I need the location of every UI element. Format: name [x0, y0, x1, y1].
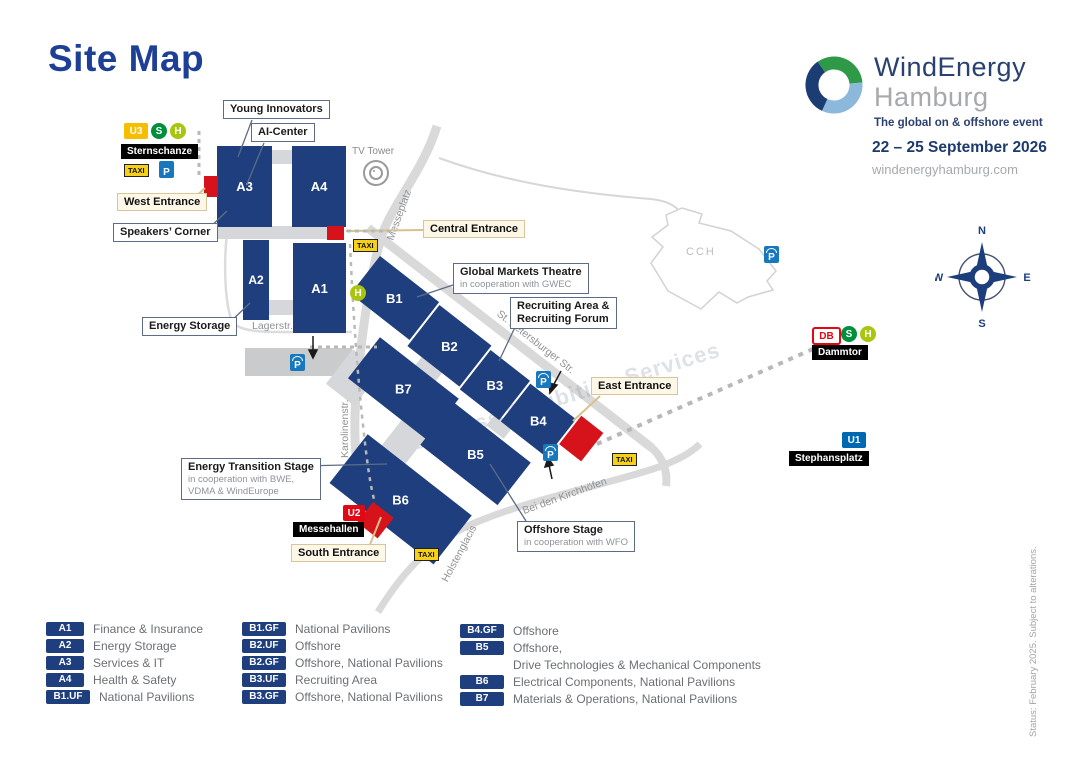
energy-transition-stage-label: Energy Transition Stage in cooperation w… — [181, 458, 321, 500]
station-dammtor: Dammtor — [812, 345, 868, 360]
compass-east: E — [1023, 272, 1030, 284]
covered-parking-icon-lagerstr: P — [290, 354, 305, 371]
energy-transition-sub2: VDMA & WindEurope — [188, 486, 314, 497]
legend-label-b1uf: National Pavilions — [99, 690, 194, 704]
recruiting-line1: Recruiting Area & — [517, 300, 610, 312]
legend-code-a2: A2 — [46, 639, 84, 653]
recruiting-label: Recruiting Area & Recruiting Forum — [510, 297, 617, 329]
sbahn-icon-dammtor: S — [841, 326, 857, 342]
station-sternschanze: Sternschanze — [121, 144, 198, 159]
legend-row: B4.GFOffshore — [460, 622, 761, 639]
energy-transition-title: Energy Transition Stage — [188, 461, 314, 473]
energy-storage-label: Energy Storage — [142, 317, 237, 336]
legend-row: B2.GFOffshore, National Pavilions — [242, 654, 443, 671]
legend-code-b2gf: B2.GF — [242, 656, 286, 670]
legend-row: A3Services & IT — [46, 654, 203, 671]
legend-label-b2gf: Offshore, National Pavilions — [295, 656, 443, 670]
offshore-stage-subtitle: in cooperation with WFO — [524, 537, 628, 548]
taxi-icon-central: TAXI — [353, 239, 378, 252]
legend-code-b1uf: B1.UF — [46, 690, 90, 704]
legend-code-b7: B7 — [460, 692, 504, 706]
legend-label-b6: Electrical Components, National Pavilion… — [513, 675, 735, 689]
covered-parking-icon-east: P — [543, 444, 558, 461]
taxi-icon-east: TAXI — [612, 453, 637, 466]
legend-code-a4: A4 — [46, 673, 84, 687]
legend-label-b5: Offshore, — [513, 641, 562, 655]
legend-row: Drive Technologies & Mechanical Componen… — [460, 656, 761, 673]
legend-label-b2uf: Offshore — [295, 639, 341, 653]
u2-line-icon: U2 — [343, 505, 365, 521]
global-markets-theatre-label: Global Markets Theatre in cooperation wi… — [453, 263, 589, 294]
global-markets-subtitle: in cooperation with GWEC — [460, 279, 582, 290]
legend-column-2: B1.GFNational Pavilions B2.UFOffshore B2… — [242, 620, 443, 705]
u1-line-icon: U1 — [842, 432, 866, 448]
legend-label-b4gf: Offshore — [513, 624, 559, 638]
legend-row: B3.GFOffshore, National Pavilions — [242, 688, 443, 705]
legend-code-b2uf: B2.UF — [242, 639, 286, 653]
south-entrance-label: South Entrance — [291, 544, 386, 562]
speakers-corner-label: Speakers’ Corner — [113, 223, 218, 242]
legend-label-b3uf: Recruiting Area — [295, 673, 377, 687]
sbahn-icon: S — [151, 123, 167, 139]
legend-code-b4gf: B4.GF — [460, 624, 504, 638]
recruiting-line2: Recruiting Forum — [517, 313, 609, 325]
compass-rose: N S W E — [935, 222, 1035, 330]
legend-code-b6: B6 — [460, 675, 504, 689]
offshore-stage-title: Offshore Stage — [524, 524, 603, 536]
legend-row: A4Health & Safety — [46, 671, 203, 688]
offshore-stage-label: Offshore Stage in cooperation with WFO — [517, 521, 635, 552]
legend-label-b3gf: Offshore, National Pavilions — [295, 690, 443, 704]
covered-parking-icon-cch: P — [764, 246, 779, 263]
global-markets-title: Global Markets Theatre — [460, 266, 582, 278]
legend-row: A1Finance & Insurance — [46, 620, 203, 637]
station-stephansplatz: Stephansplatz — [789, 451, 869, 466]
taxi-icon-south: TAXI — [414, 548, 439, 561]
legend-row: B2.UFOffshore — [242, 637, 443, 654]
legend-label-b5-line2: Drive Technologies & Mechanical Componen… — [513, 658, 761, 672]
legend-row: B5Offshore, — [460, 639, 761, 656]
legend-code-b3gf: B3.GF — [242, 690, 286, 704]
legend-label-a4: Health & Safety — [93, 673, 176, 687]
central-entrance-label: Central Entrance — [423, 220, 525, 238]
legend-code-b1gf: B1.GF — [242, 622, 286, 636]
station-messehallen: Messehallen — [293, 522, 364, 537]
legend-code-a3: A3 — [46, 656, 84, 670]
bus-stop-icon-dammtor: H — [860, 326, 876, 342]
legend-column-3: B4.GFOffshore B5Offshore, Drive Technolo… — [460, 622, 761, 707]
legend-label-b7: Materials & Operations, National Pavilio… — [513, 692, 737, 706]
pedestrian-dashed-paths — [197, 131, 813, 503]
legend-code-b5: B5 — [460, 641, 504, 655]
legend-label-a3: Services & IT — [93, 656, 164, 670]
legend-column-1: A1Finance & Insurance A2Energy Storage A… — [46, 620, 203, 705]
legend-row: B6Electrical Components, National Pavili… — [460, 673, 761, 690]
legend-row: B3.UFRecruiting Area — [242, 671, 443, 688]
west-entrance-label: West Entrance — [117, 193, 207, 211]
legend-label-b1gf: National Pavilions — [295, 622, 390, 636]
covered-parking-icon-b4: P — [536, 371, 551, 388]
compass-south: S — [978, 318, 985, 330]
young-innovators-label: Young Innovators — [223, 100, 330, 119]
compass-west: W — [935, 272, 944, 284]
taxi-icon-west: TAXI — [124, 164, 149, 177]
legend-code-a1: A1 — [46, 622, 84, 636]
compass-north: N — [978, 225, 986, 237]
site-map-page: Congress Exhibition Services Site Map Wi… — [0, 0, 1080, 764]
parking-icon-west: P — [159, 161, 174, 178]
legend-row: A2Energy Storage — [46, 637, 203, 654]
legend-label-a1: Finance & Insurance — [93, 622, 203, 636]
windenergy-logo-icon — [798, 46, 870, 122]
energy-transition-sub1: in cooperation with BWE, — [188, 474, 314, 485]
legend-row: B1.UFNational Pavilions — [46, 688, 203, 705]
legend-label-a2: Energy Storage — [93, 639, 176, 653]
bus-stop-icon-central: H — [350, 285, 366, 301]
legend-row: B7Materials & Operations, National Pavil… — [460, 690, 761, 707]
ai-center-label: AI-Center — [251, 123, 315, 142]
east-entrance-label: East Entrance — [591, 377, 678, 395]
legend-code-b3uf: B3.UF — [242, 673, 286, 687]
u3-line-icon: U3 — [124, 123, 148, 139]
db-rail-icon: DB — [812, 327, 841, 345]
bus-stop-icon: H — [170, 123, 186, 139]
legend-row: B1.GFNational Pavilions — [242, 620, 443, 637]
direction-arrows — [309, 336, 561, 479]
